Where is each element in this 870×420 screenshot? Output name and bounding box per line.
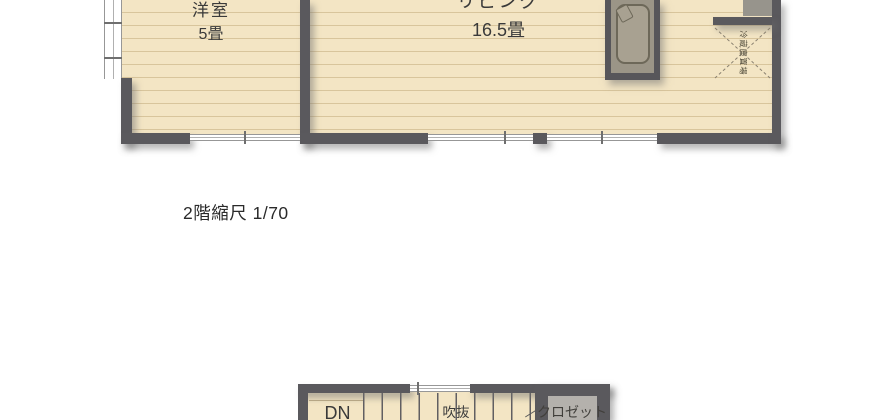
window-symbol-1f: [410, 385, 470, 392]
wall-south-right: [657, 133, 781, 144]
room-size-living: 16.5畳: [417, 21, 580, 39]
refrigerator-space-label: 冷蔵庫置場: [737, 30, 748, 75]
kitchen-counter: [605, 0, 660, 80]
closet-label: クロゼット: [537, 405, 617, 419]
window-tick: [417, 382, 419, 395]
wall-south-stub: [533, 133, 547, 144]
window-tick: [104, 57, 122, 59]
wall-kitchen-return: [713, 17, 772, 25]
window-symbol-south-2: [428, 134, 533, 141]
window-pane-line: [428, 137, 533, 138]
counter-end-block: [743, 0, 772, 16]
wall-south-mid: [300, 133, 428, 144]
floor-plan-canvas: 冷蔵庫置場 洋室 5畳 リビング 16.5畳 2階縮尺 1/70 DN 吹抜 ク…: [0, 0, 870, 420]
void-label: 吹抜: [426, 406, 486, 420]
window-symbol-south-1: [190, 134, 300, 141]
window-tick: [601, 131, 603, 144]
wall-1f-top-left: [298, 384, 410, 393]
window-tick: [244, 131, 246, 144]
window-tick: [504, 131, 506, 144]
wall-south-left: [121, 133, 190, 144]
room-name-living: リビング: [417, 0, 580, 11]
window-symbol-west: [104, 0, 122, 79]
window-tick: [104, 22, 122, 24]
wall-room-divider: [300, 0, 310, 144]
stairs-down-label: DN: [310, 404, 365, 420]
wall-1f-left: [298, 384, 308, 420]
window-pane-line: [410, 388, 470, 389]
wall-east: [772, 0, 781, 144]
refrigerator-space: 冷蔵庫置場: [713, 25, 772, 80]
scale-caption: 2階縮尺 1/70: [183, 200, 289, 225]
room-size-yoshitsu: 5畳: [122, 27, 300, 43]
stair-landing-line: [309, 400, 363, 401]
window-pane-line: [113, 0, 114, 79]
window-symbol-south-3: [547, 134, 657, 141]
room-name-yoshitsu: 洋室: [122, 2, 300, 19]
